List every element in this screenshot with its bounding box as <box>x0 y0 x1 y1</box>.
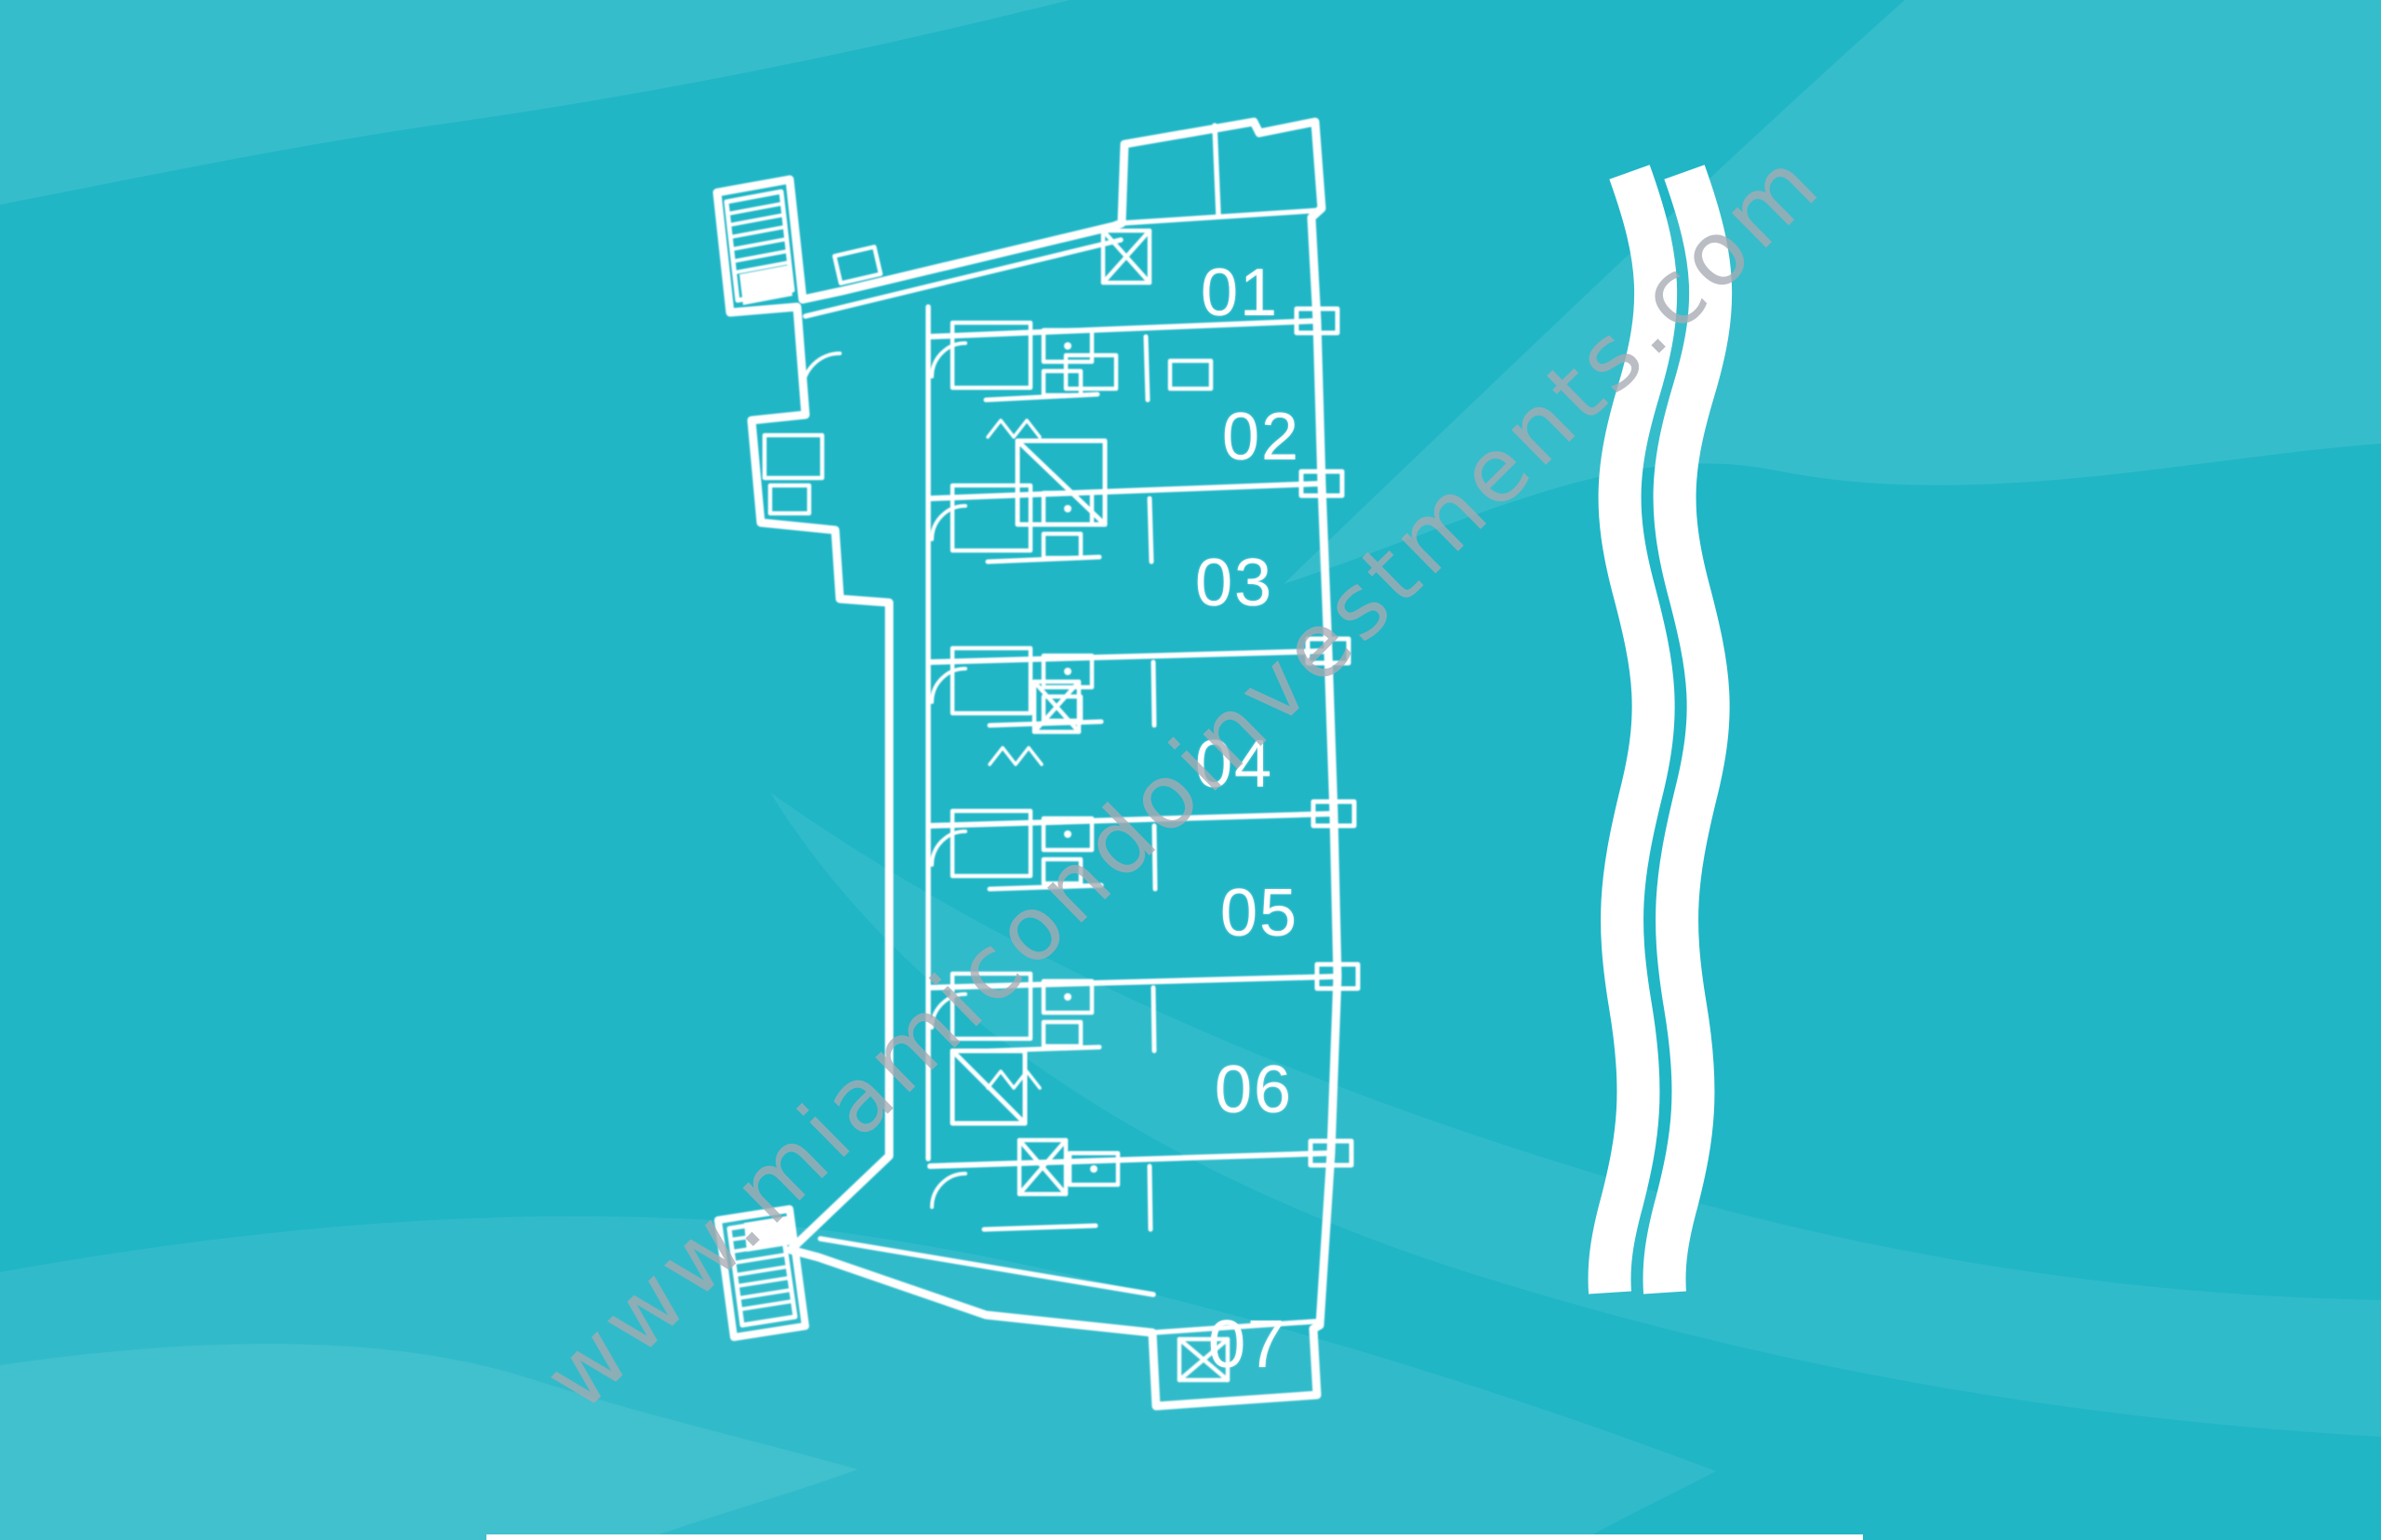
unit-label-07: 07 <box>1208 1307 1286 1383</box>
background-wave-band <box>0 0 1070 205</box>
unit-label-03: 03 <box>1195 545 1273 621</box>
unit-label-01: 01 <box>1201 255 1279 331</box>
unit-label-05: 05 <box>1220 875 1298 951</box>
stairwell-top <box>726 192 792 305</box>
unit-label-06: 06 <box>1215 1052 1293 1128</box>
bottom-white-bar <box>486 1534 1863 1540</box>
page-background: 01 02 03 04 05 06 07 www.miamicondoinves… <box>0 0 2381 1540</box>
unit-label-02: 02 <box>1222 399 1300 475</box>
